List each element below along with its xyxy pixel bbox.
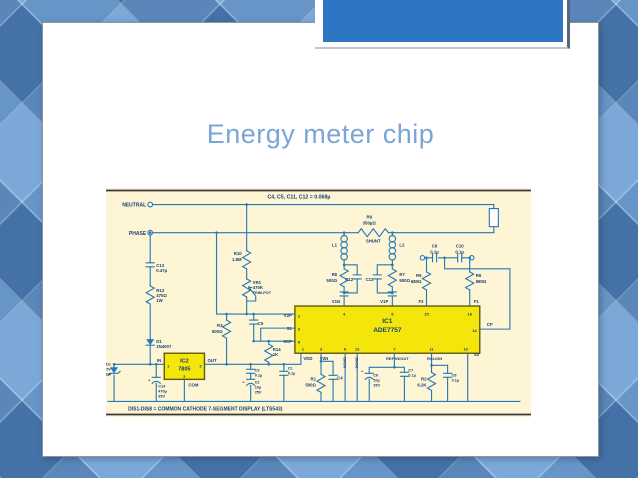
zd1-val-label: 5V (106, 367, 111, 371)
cap-c7-icon (400, 372, 408, 376)
rclkin-label: RCLKIN (427, 356, 442, 361)
header-note-label: C4, C5, C11, C12 = 0.068µ (267, 195, 330, 201)
cap-c6-icon (365, 373, 373, 379)
ic2-ref-label: IC2 (180, 358, 189, 364)
r1-val-label: 500Ω (305, 382, 316, 387)
resistor-r6-icon (466, 272, 474, 290)
v1n-label: V1N (332, 299, 340, 304)
ic1-part-label: ADE7757 (373, 327, 402, 334)
vdd-label: VDD (303, 356, 312, 361)
cap-c13-icon (146, 263, 154, 267)
c5-label: C5 (258, 321, 264, 326)
zd1-pow-label: 1W (106, 372, 111, 376)
c6-plus-label: + (361, 369, 364, 373)
c13-val-label: 0.47µ (156, 268, 167, 273)
top-banner (315, 0, 570, 49)
r3-val-label: 500Ω (212, 329, 223, 334)
resistor-r5-icon (422, 272, 430, 290)
r10-val-label: 1.8M (232, 257, 242, 262)
inductor-l1-icon (341, 235, 347, 260)
v2n-label: V2N (320, 356, 328, 361)
r9-val-label: 350µΩ (363, 221, 377, 226)
zd1-ref-label: ZD1 (106, 362, 111, 366)
v2p-label: V2P (284, 313, 292, 318)
c10-ref-label: C10 (456, 244, 465, 249)
ic2-in-label: IN (157, 358, 161, 363)
c6-ref-label: C6 (373, 373, 378, 377)
ic1-pin16-number: 16 (467, 312, 472, 317)
ic2-pin3-number: 3 (199, 364, 201, 368)
c6-val-label: 10µ (373, 378, 379, 382)
r5-val-label: 680Ω (411, 279, 422, 284)
c11-label: C11 (366, 277, 374, 282)
c10-val-label: 0.1µ (455, 249, 464, 254)
f2-terminal-icon (420, 256, 424, 260)
resistor-r9-shunt-icon (358, 229, 388, 237)
r14-val-label: 1K (273, 352, 279, 357)
f1-label: F1 (474, 299, 480, 304)
r1-ref-label: R1 (310, 376, 316, 381)
top-banner-fill (323, 0, 563, 42)
c6-volt-label: 25V (373, 383, 380, 387)
ic2-pin2-number: 2 (183, 375, 185, 379)
r6-ref-label: R6 (476, 273, 482, 278)
c14-plus-label: + (148, 378, 151, 382)
r7-ref-label: R7 (399, 272, 405, 277)
cap-c9-icon (433, 254, 437, 262)
r13-pow-label: 1W (156, 298, 163, 303)
dgnd-label: DGND (355, 357, 359, 368)
ic2-pin1-number: 1 (167, 364, 169, 368)
resistor-r13-icon (146, 286, 154, 304)
r2-ref-label: R2 (421, 376, 427, 381)
r5-ref-label: R5 (416, 273, 422, 278)
r6-val-label: 680Ω (476, 279, 487, 284)
cap-c11-icon (373, 275, 381, 279)
cap-c1-icon (280, 371, 288, 375)
c9-val-label: 0.1µ (430, 249, 439, 254)
c4-label: C4 (337, 375, 343, 380)
f2-label: F2 (418, 299, 424, 304)
r2-val-label: 6.2K (417, 382, 427, 387)
cap-c8-icon (444, 373, 452, 377)
l2-label: L2 (399, 243, 405, 248)
cap-c5-icon (250, 320, 258, 324)
inductor-l2-icon (389, 235, 395, 260)
ic1-pin13-number: 13 (355, 347, 360, 352)
c14-volt-label: 35V (158, 394, 165, 398)
scf-label: SCF (283, 339, 292, 344)
r8-ref-label: R8 (332, 272, 338, 277)
ref-inout-label: REF IN/OUT (386, 356, 409, 361)
diode-d1-icon (146, 339, 154, 345)
c2-plus-label: + (242, 380, 245, 384)
cf-label: CF (487, 322, 493, 327)
s1-label: S1 (287, 326, 293, 331)
c8-val-label: 0.1µ (452, 378, 459, 382)
c12-label: C12 (345, 277, 354, 282)
ic2-out-label: OUT (207, 358, 216, 363)
neutral-terminal-icon (148, 202, 153, 207)
c2-volt-label: 25V (255, 390, 262, 394)
c9-ref-label: C9 (432, 244, 438, 249)
r8-val-label: 500Ω (326, 278, 337, 283)
circuit-figure: C4, C5, C11, C12 = 0.068µ NEUTRAL PHASE … (106, 188, 531, 417)
ic1-pin10-number: 10 (463, 347, 468, 352)
ic1-pin15-number: 15 (424, 312, 429, 317)
c1-val-label: 0.1µ (288, 371, 295, 375)
slide-canvas: Energy meter chip (42, 22, 599, 457)
r7-val-label: 500Ω (399, 278, 410, 283)
vr1-type-label: TRIM-POT (253, 291, 272, 295)
ic1-ref-label: IC1 (382, 318, 393, 325)
circuit-schematic: C4, C5, C11, C12 = 0.068µ NEUTRAL PHASE … (106, 188, 531, 417)
cap-c3-icon (247, 369, 255, 373)
r9-ref-label: R9 (366, 215, 372, 220)
c14-ref-label: C14 (158, 384, 166, 388)
cap-c4-icon (329, 375, 337, 379)
resistor-r2-icon (428, 372, 436, 390)
l1-label: L1 (332, 243, 338, 248)
footer-note-label: DIS1-DIS8 = COMMON CATHODE 7-SEGMENT DIS… (128, 407, 283, 413)
ic2-part-label: 7805 (178, 366, 190, 372)
c2-ref-label: C2 (255, 380, 260, 384)
c7-ref-label: C7 (408, 368, 413, 372)
resistor-r1-icon (317, 374, 325, 392)
resistor-r14-icon (265, 344, 273, 362)
r10-ref-label: R10 (234, 251, 243, 256)
neutral-label: NEUTRAL (122, 203, 146, 209)
cap-c12-icon (353, 275, 361, 279)
c7-val-label: 0.1µ (408, 373, 415, 377)
c3-ref-label: C3 (255, 368, 260, 372)
c14-val-label: 470µ (158, 389, 167, 393)
phase-label: PHASE (129, 231, 147, 237)
slide-title: Energy meter chip (43, 119, 598, 150)
vr1-val-label: 470K (253, 285, 264, 290)
r9-shunt-label: SHUNT (366, 239, 381, 244)
load-box-icon (489, 209, 498, 227)
slide-background-pattern: Energy meter chip (0, 0, 638, 478)
cap-c2-icon (247, 379, 255, 385)
resistor-r10-icon (243, 251, 251, 269)
v1p-label: V1P (380, 299, 388, 304)
resistor-r7-icon (388, 269, 396, 287)
c2-val-label: 10µ (255, 385, 261, 389)
s0-label: S0 (474, 352, 480, 357)
agnd-label: AGND (343, 357, 347, 368)
c3-val-label: 0.1µ (255, 373, 262, 377)
ic1-pin14-number: 14 (472, 328, 477, 333)
c8-ref-label: C8 (452, 373, 457, 377)
cap-c10-icon (458, 254, 462, 262)
resistor-r3-icon (223, 320, 231, 338)
d1-val-label: 1N4007 (156, 344, 172, 349)
c1-ref-label: C1 (288, 366, 293, 370)
r3-ref-label: R3 (217, 323, 223, 328)
ic2-com-label: COM (188, 382, 198, 387)
cap-c14-icon (152, 377, 160, 383)
